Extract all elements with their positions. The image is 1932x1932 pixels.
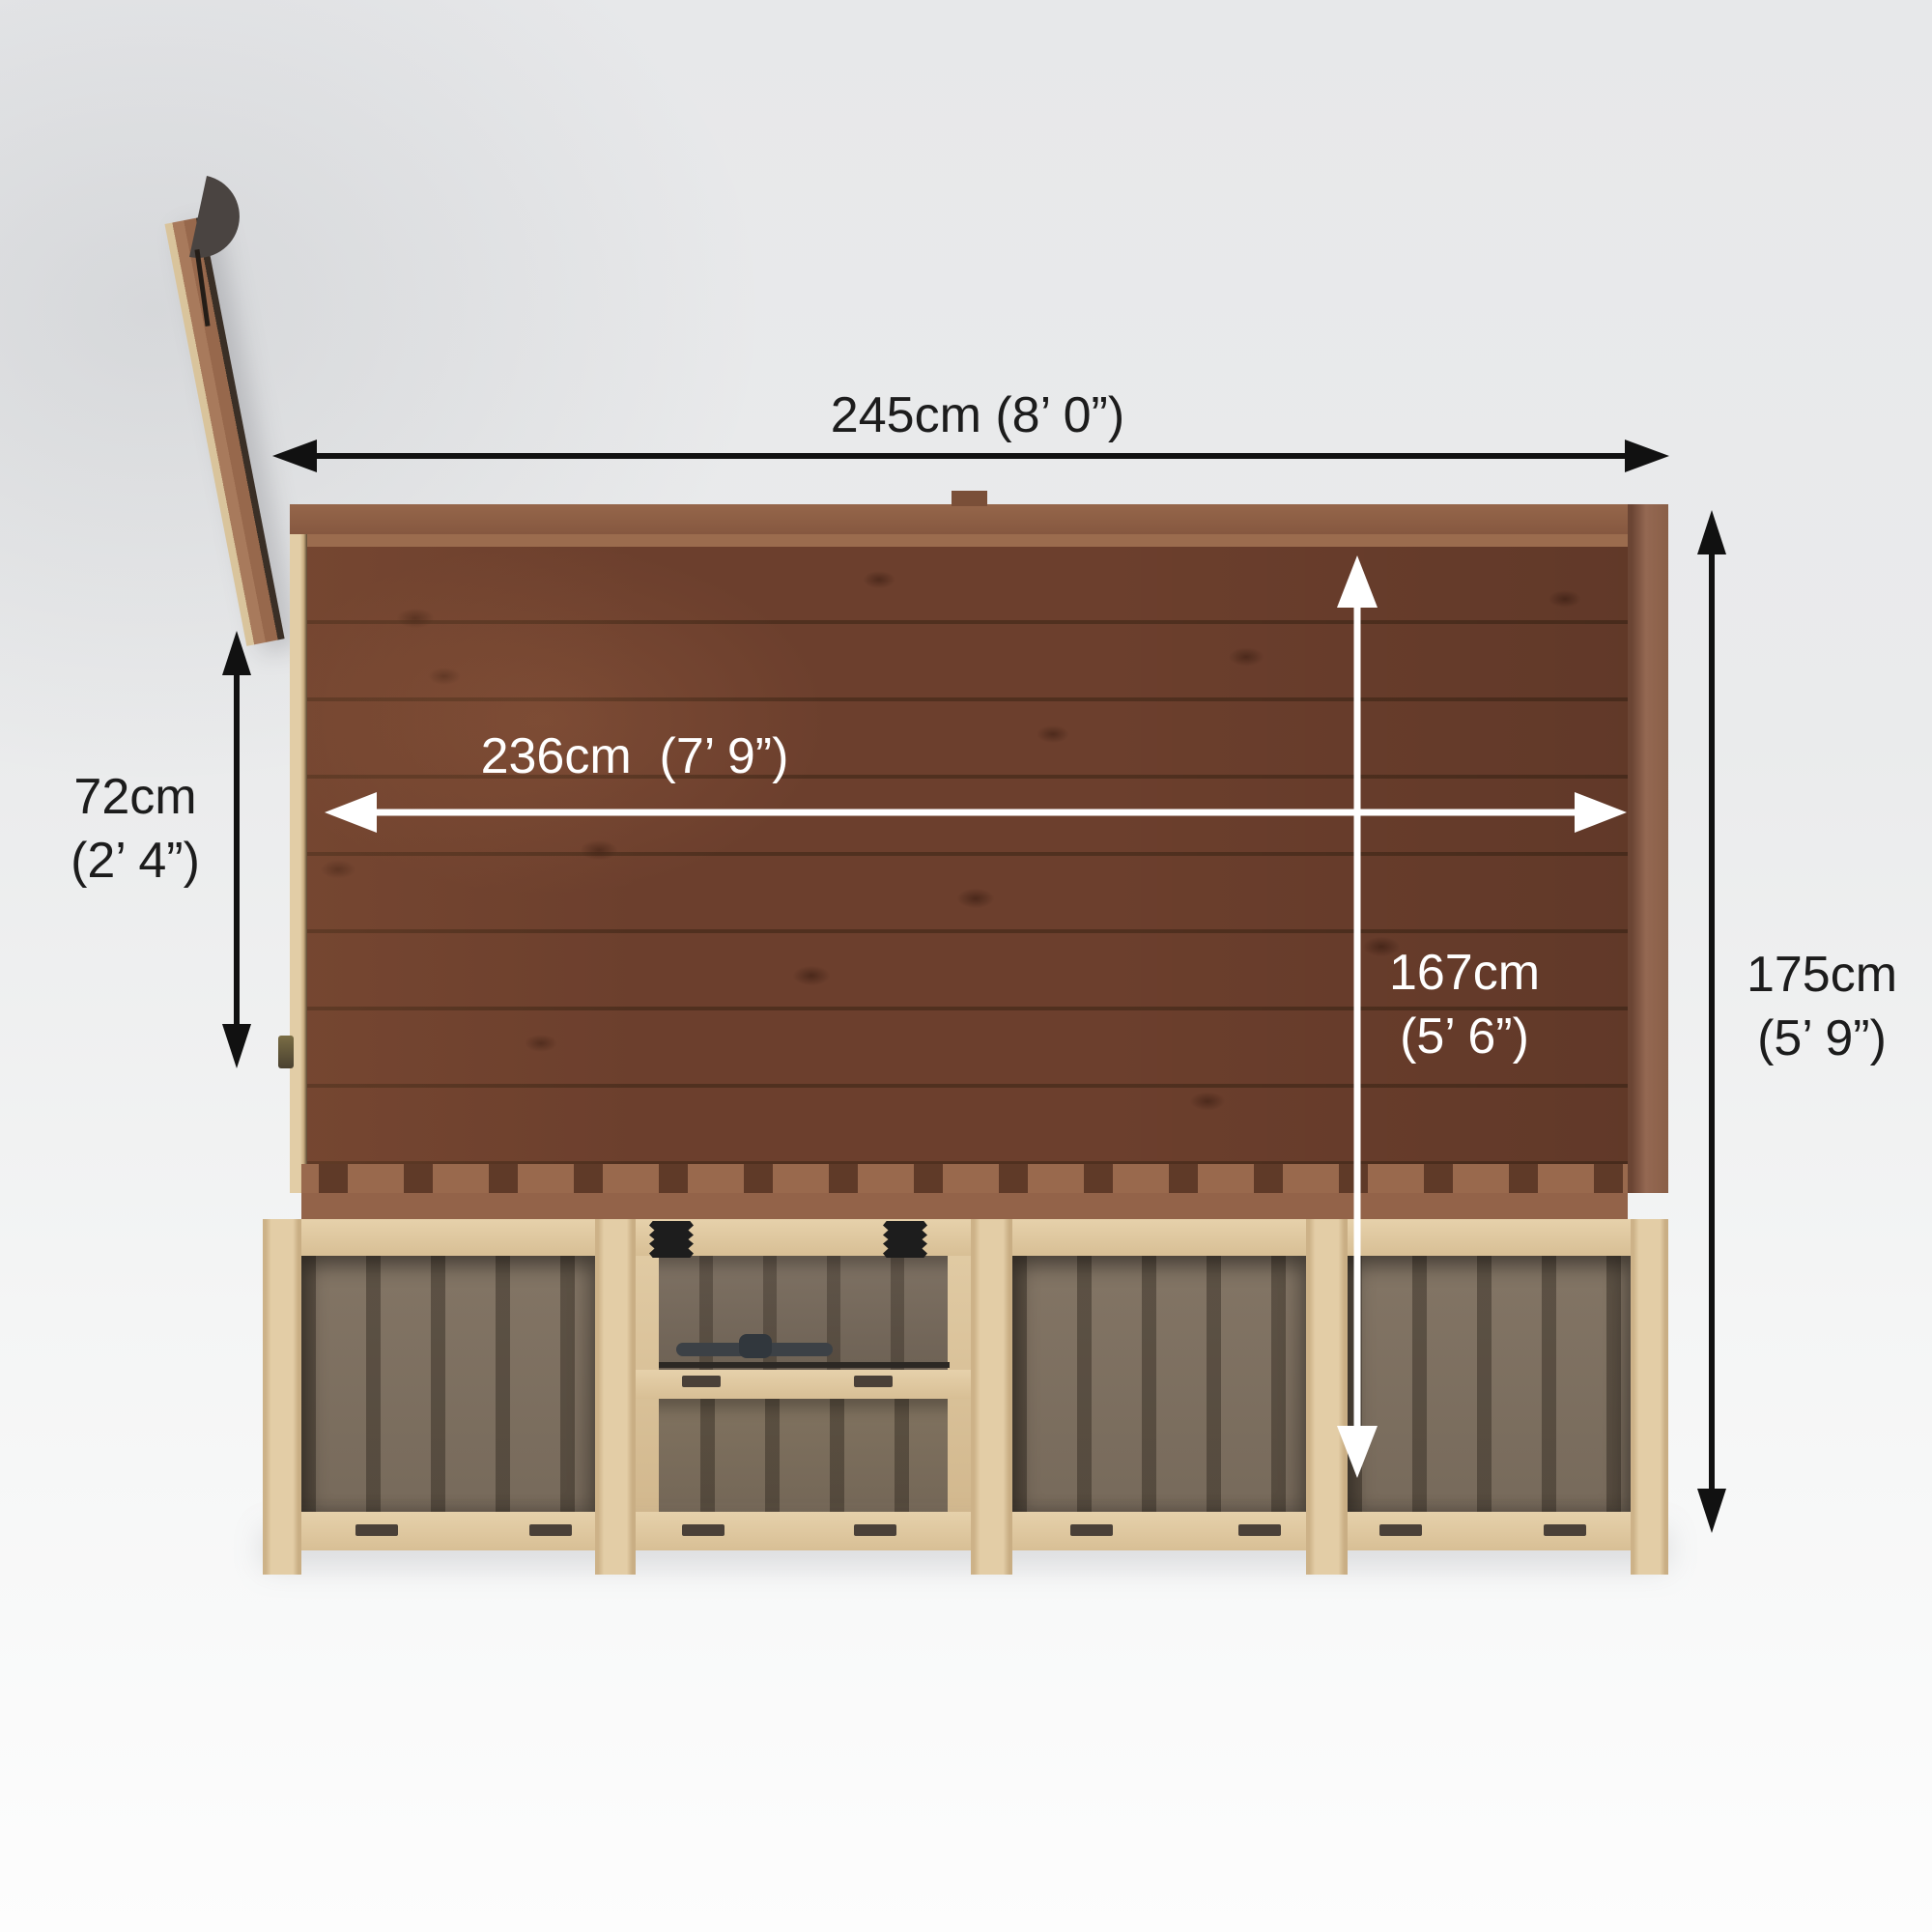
dimension-arrow-total-depth [1697,510,1726,1533]
dimension-arrow-internal-width [325,792,1627,833]
product-dimension-diagram: 245cm (8’ 0”) 236cm (7’ 9”) 72cm (2’ 4”)… [0,0,1932,1932]
label-internal-depth: 167cm (5’ 6”) [1389,941,1540,1068]
label-internal-width: 236cm (7’ 9”) [481,724,789,788]
dimension-arrow-internal-depth [1337,555,1378,1478]
label-total-width: 245cm (8’ 0”) [831,384,1124,447]
dimension-arrows-layer [0,0,1932,1932]
dimension-arrow-door-width [222,631,251,1068]
label-door-width: 72cm (2’ 4”) [71,765,200,893]
label-total-depth: 175cm (5’ 9”) [1747,943,1897,1070]
